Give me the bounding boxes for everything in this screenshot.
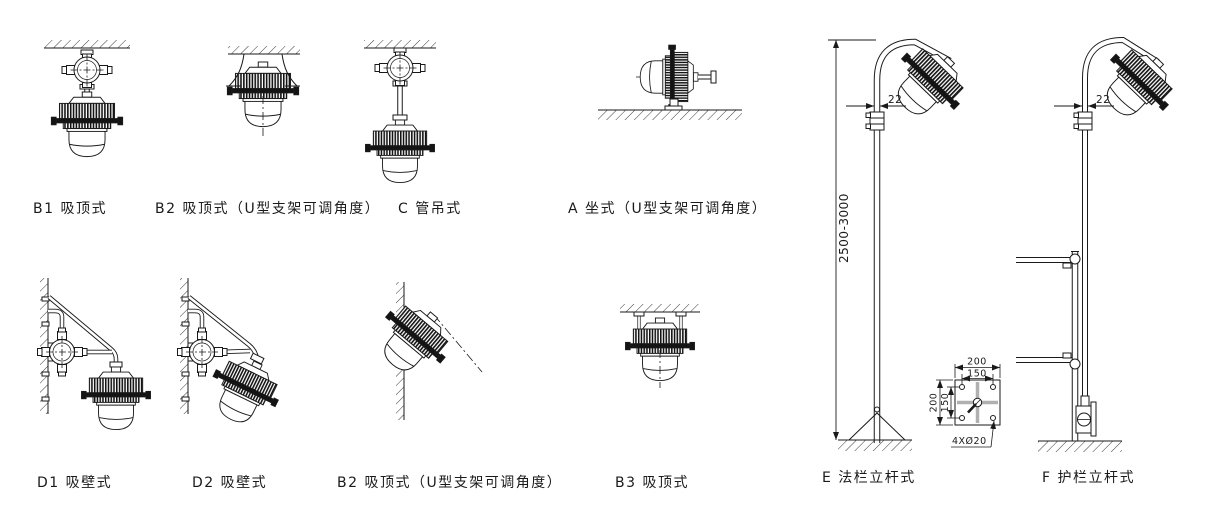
dim-plate-hole-spacing-left: 150 — [940, 393, 951, 413]
figure-label-b1: B1 吸顶式 — [33, 201, 107, 217]
dim-pole-diameter-f: 22 — [1096, 94, 1110, 106]
figure-label-d1: D1 吸壁式 — [37, 475, 112, 491]
technical-drawing: B1 吸顶式 B2 吸顶式（U型支架可调角度） C 管吊式 A 坐式（U型支架 — [0, 0, 1232, 507]
figure-label-a: A 坐式（U型支架可调角度） — [568, 201, 767, 217]
dim-plate-holes: 4XØ20 — [952, 436, 987, 447]
figure-label-e: E 法栏立杆式 — [822, 470, 916, 486]
dim-pole-diameter-e: 22 — [888, 94, 902, 106]
figure-label-b2-top: B2 吸顶式（U型支架可调角度） — [155, 201, 380, 217]
dim-plate-width-top: 200 — [967, 357, 987, 368]
figure-label-f: F 护栏立杆式 — [1042, 470, 1135, 486]
dim-pole-height: 2500-3000 — [837, 193, 851, 263]
diagram-canvas: B1 吸顶式 B2 吸顶式（U型支架可调角度） C 管吊式 A 坐式（U型支架 — [0, 0, 1232, 507]
figure-label-d2: D2 吸壁式 — [192, 475, 267, 491]
figure-label-b2-wall: B2 吸顶式（U型支架可调角度） — [337, 475, 562, 491]
figure-label-c: C 管吊式 — [398, 201, 462, 217]
dim-plate-hole-spacing-top: 150 — [967, 369, 987, 380]
figure-label-b3: B3 吸顶式 — [615, 475, 689, 491]
dim-plate-height-left: 200 — [929, 393, 940, 413]
